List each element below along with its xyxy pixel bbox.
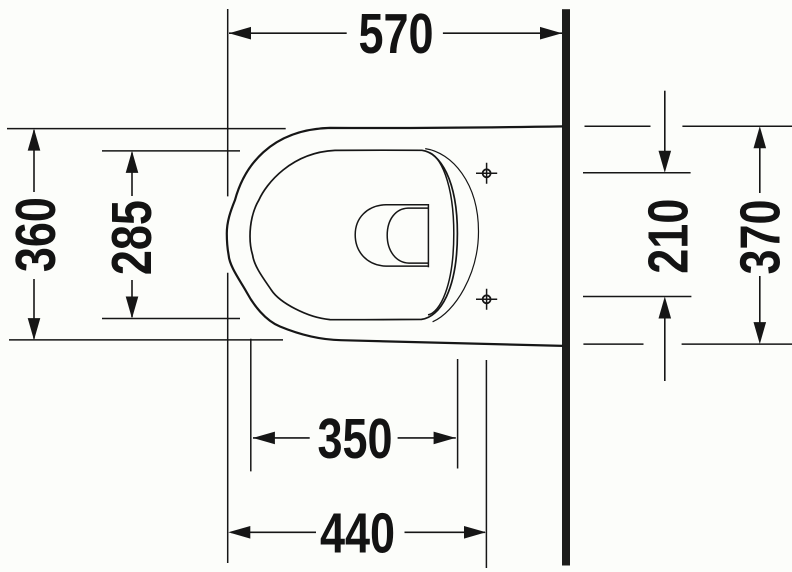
svg-text:210: 210: [636, 199, 699, 274]
svg-text:440: 440: [320, 501, 395, 564]
svg-text:285: 285: [100, 200, 163, 275]
svg-text:350: 350: [317, 407, 392, 470]
svg-text:360: 360: [4, 197, 67, 272]
svg-text:370: 370: [728, 199, 791, 274]
svg-text:570: 570: [358, 2, 433, 65]
